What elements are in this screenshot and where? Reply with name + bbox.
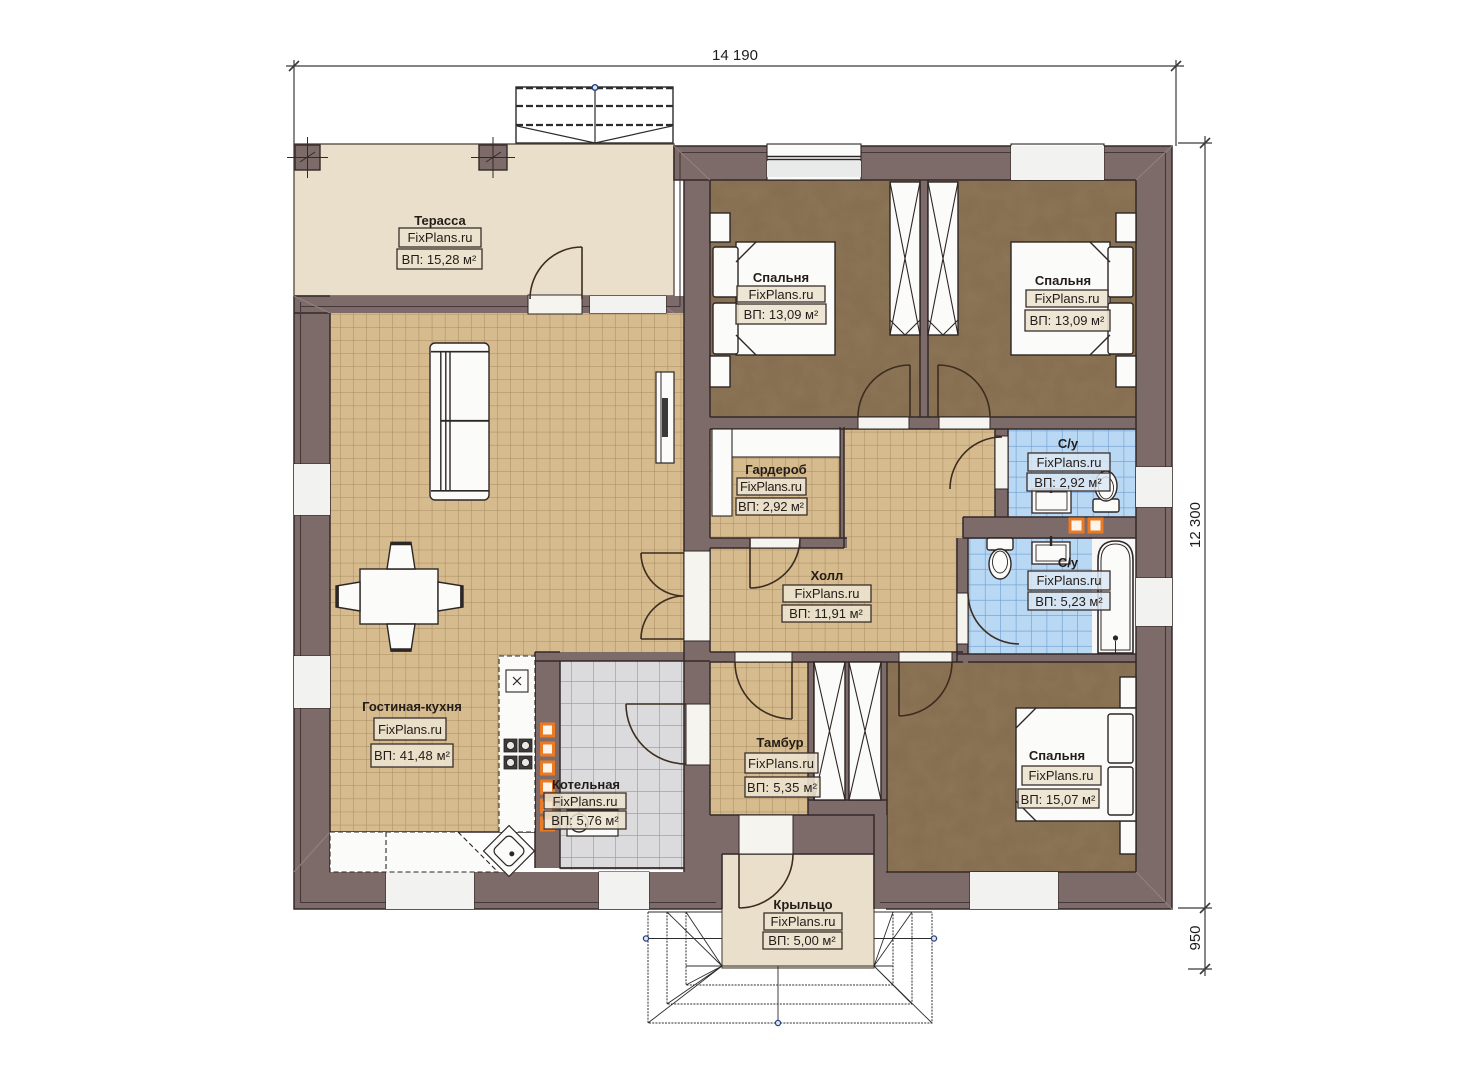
svg-text:ВП: 11,91 м²: ВП: 11,91 м² [789,606,863,621]
svg-text:FixPlans.ru: FixPlans.ru [1036,573,1101,588]
svg-text:Холл: Холл [811,568,844,583]
svg-text:FixPlans.ru: FixPlans.ru [770,914,835,929]
svg-text:FixPlans.ru: FixPlans.ru [1034,291,1099,306]
svg-text:ВП: 5,23 м²: ВП: 5,23 м² [1035,594,1103,609]
svg-text:FixPlans.ru: FixPlans.ru [794,586,859,601]
svg-text:FixPlans.ru: FixPlans.ru [407,230,472,245]
svg-text:FixPlans.ru: FixPlans.ru [1036,455,1101,470]
svg-text:С/у: С/у [1058,436,1079,451]
svg-text:ВП: 2,92 м²: ВП: 2,92 м² [738,499,805,514]
svg-text:С/у: С/у [1058,555,1079,570]
svg-text:950: 950 [1187,925,1204,950]
svg-text:FixPlans.ru: FixPlans.ru [748,287,813,302]
svg-text:Гостиная-кухня: Гостиная-кухня [362,699,462,714]
svg-text:Крыльцо: Крыльцо [773,897,832,912]
svg-text:FixPlans.ru: FixPlans.ru [1028,768,1093,783]
svg-text:Гардероб: Гардероб [745,462,806,477]
svg-text:FixPlans.ru: FixPlans.ru [740,479,802,494]
svg-text:14 190: 14 190 [712,47,758,64]
svg-text:Спальня: Спальня [1035,273,1091,288]
svg-text:ВП: 15,07 м²: ВП: 15,07 м² [1021,792,1096,807]
svg-text:Котельная: Котельная [552,777,620,792]
svg-text:Тамбур: Тамбур [756,735,803,750]
svg-text:Спальня: Спальня [753,270,809,285]
svg-text:ВП: 5,35 м²: ВП: 5,35 м² [747,780,818,795]
svg-text:FixPlans.ru: FixPlans.ru [378,722,442,737]
svg-text:ВП: 13,09 м²: ВП: 13,09 м² [1030,313,1105,328]
svg-text:ВП: 5,00 м²: ВП: 5,00 м² [768,933,836,948]
svg-text:ВП: 41,48 м²: ВП: 41,48 м² [374,748,451,763]
svg-text:ВП: 13,09 м²: ВП: 13,09 м² [744,307,819,322]
svg-text:12 300: 12 300 [1187,502,1204,548]
svg-text:Спальня: Спальня [1029,748,1085,763]
svg-text:FixPlans.ru: FixPlans.ru [748,756,814,771]
svg-text:ВП: 5,76 м²: ВП: 5,76 м² [551,813,619,828]
svg-text:ВП: 15,28 м²: ВП: 15,28 м² [402,252,477,267]
svg-text:ВП: 2,92 м²: ВП: 2,92 м² [1034,475,1102,490]
svg-text:Терасса: Терасса [414,213,466,228]
svg-text:FixPlans.ru: FixPlans.ru [552,794,617,809]
